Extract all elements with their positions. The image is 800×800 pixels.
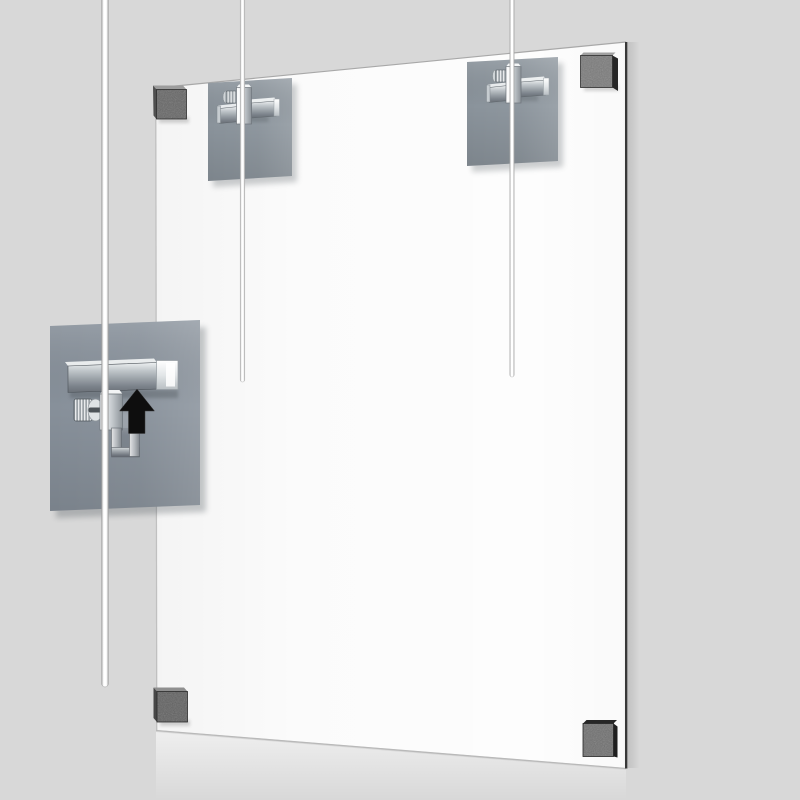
end-cap-highlight — [166, 363, 175, 387]
right-hanging-cable — [510, 0, 514, 377]
left-hanging-cable — [102, 0, 109, 687]
pad-side-face — [614, 724, 618, 758]
top-center-hanger — [208, 78, 297, 187]
corner-pad-top-left — [153, 86, 189, 124]
product-illustration — [0, 0, 800, 800]
pad-side-face — [154, 688, 158, 723]
corner-pad-bottom-right — [583, 720, 618, 758]
center-hanging-cable — [240, 0, 245, 382]
corner-pad-bottom-left — [154, 688, 191, 727]
corner-pad-top-right — [581, 53, 619, 92]
pad-top-face — [153, 86, 187, 90]
top-right-hanger — [467, 57, 563, 172]
security-bar — [68, 363, 157, 393]
pad-side-face — [153, 86, 157, 120]
pad-side-face — [613, 56, 619, 92]
detail-callout — [50, 320, 206, 518]
panel-right-shadow — [628, 42, 640, 768]
pad-top-face — [581, 53, 616, 56]
illustration-canvas — [0, 0, 800, 800]
pad-texture — [157, 90, 187, 120]
pad-top-face — [583, 720, 617, 724]
pad-top-face — [154, 688, 188, 692]
pad-texture — [581, 56, 613, 88]
pad-texture — [157, 692, 188, 723]
pad-texture — [583, 724, 614, 757]
